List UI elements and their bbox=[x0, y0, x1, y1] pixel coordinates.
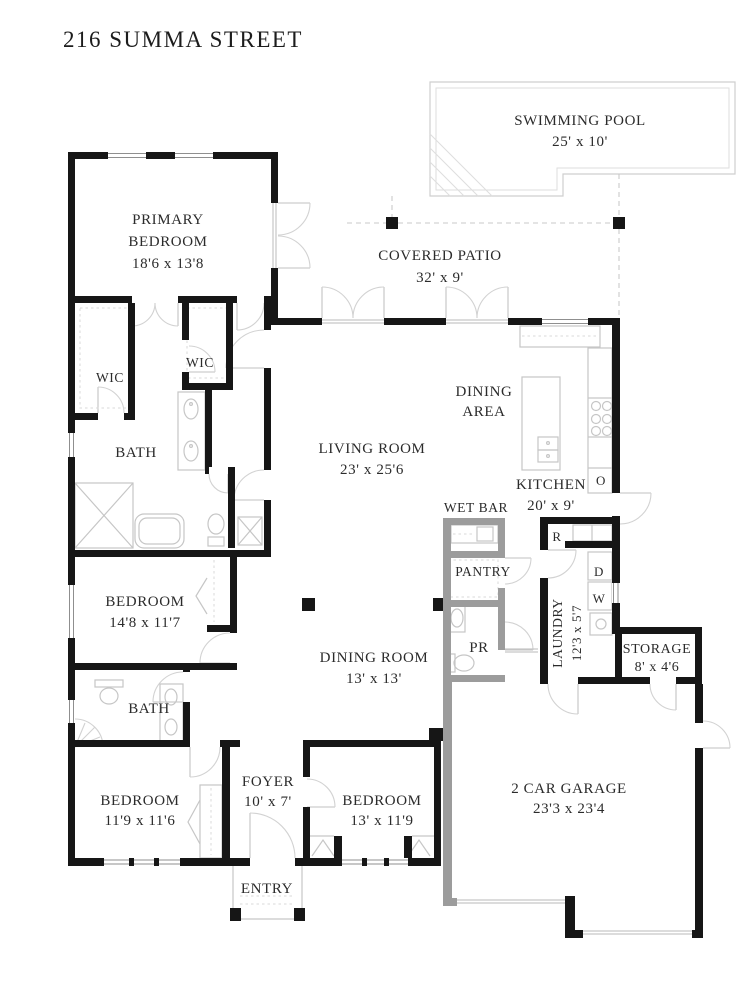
linen-closet-icon bbox=[238, 517, 262, 545]
svg-text:AREA: AREA bbox=[462, 404, 505, 420]
svg-text:13' x 13': 13' x 13' bbox=[346, 671, 402, 687]
oven-label: O bbox=[596, 473, 606, 488]
svg-text:23' x 25'6: 23' x 25'6 bbox=[340, 462, 404, 478]
room-foyer: FOYER 10' x 7' bbox=[242, 774, 294, 810]
column bbox=[429, 728, 445, 741]
pool-label: SWIMMING POOL bbox=[514, 113, 646, 129]
svg-text:12'3 x 5'7: 12'3 x 5'7 bbox=[569, 605, 584, 661]
svg-text:11'9 x 11'6: 11'9 x 11'6 bbox=[105, 813, 176, 829]
bathtub-icon bbox=[135, 514, 184, 548]
svg-text:PRIMARY: PRIMARY bbox=[132, 212, 204, 228]
svg-text:LIVING ROOM: LIVING ROOM bbox=[318, 441, 425, 457]
room-primary-bedroom: PRIMARY BEDROOM 18'6 x 13'8 bbox=[128, 212, 207, 272]
room-dining-room: DINING ROOM 13' x 13' bbox=[320, 650, 429, 687]
closet-bifold-icon bbox=[188, 785, 222, 858]
closet-bifold-icon bbox=[196, 560, 214, 622]
svg-text:8' x 4'6: 8' x 4'6 bbox=[635, 660, 680, 675]
room-bedroom3: BEDROOM 11'9 x 11'6 bbox=[100, 793, 179, 829]
column bbox=[302, 598, 315, 611]
svg-text:10' x 7': 10' x 7' bbox=[244, 794, 292, 810]
patio-label: COVERED PATIO bbox=[378, 248, 502, 264]
room-laundry: LAUNDRY 12'3 x 5'7 bbox=[550, 598, 584, 667]
patio-post bbox=[386, 217, 398, 229]
svg-text:2 CAR GARAGE: 2 CAR GARAGE bbox=[511, 781, 627, 797]
patio-dims: 32' x 9' bbox=[416, 270, 464, 286]
dryer-label: D bbox=[594, 564, 604, 579]
refrigerator-label: R bbox=[552, 529, 561, 544]
svg-text:BEDROOM: BEDROOM bbox=[128, 234, 207, 250]
room-pantry: PANTRY bbox=[455, 564, 511, 579]
svg-text:KITCHEN: KITCHEN bbox=[516, 477, 586, 493]
room-storage: STORAGE 8' x 4'6 bbox=[623, 642, 692, 675]
kitchen-counter bbox=[520, 326, 600, 347]
room-pr: PR bbox=[469, 640, 489, 656]
toilet-icon bbox=[95, 680, 123, 704]
svg-text:STORAGE: STORAGE bbox=[623, 642, 692, 657]
swimming-pool: SWIMMING POOL 25' x 10' bbox=[430, 82, 735, 196]
svg-text:13' x 11'9: 13' x 11'9 bbox=[350, 813, 413, 829]
refrigerator-icon bbox=[573, 525, 612, 541]
page-title: 216 SUMMA STREET bbox=[63, 27, 303, 52]
floor-plan-page: SWIMMING POOL 25' x 10' COVERED PATIO 32… bbox=[0, 0, 747, 1000]
room-dining-area: DINING AREA bbox=[456, 384, 513, 420]
shower-icon bbox=[75, 483, 133, 548]
toilet-icon bbox=[208, 514, 224, 546]
washer-label: W bbox=[593, 591, 606, 606]
room-garage: 2 CAR GARAGE 23'3 x 23'4 bbox=[511, 781, 627, 817]
room-primary-bath: BATH bbox=[115, 445, 157, 461]
floor-plan-drawing: SWIMMING POOL 25' x 10' COVERED PATIO 32… bbox=[0, 0, 747, 1000]
room-wet-bar: WET BAR bbox=[444, 500, 508, 515]
patio-post bbox=[613, 217, 625, 229]
svg-text:DINING: DINING bbox=[456, 384, 513, 400]
svg-text:23'3 x 23'4: 23'3 x 23'4 bbox=[533, 801, 605, 817]
wet-bar-sink-icon bbox=[451, 525, 498, 543]
entry-post bbox=[294, 908, 305, 921]
cooktop-icon bbox=[588, 348, 612, 493]
svg-text:DINING ROOM: DINING ROOM bbox=[320, 650, 429, 666]
room-wic1: WIC bbox=[96, 370, 124, 385]
room-entry: ENTRY bbox=[241, 881, 293, 897]
svg-text:BEDROOM: BEDROOM bbox=[100, 793, 179, 809]
room-kitchen: KITCHEN 20' x 9' bbox=[516, 477, 586, 514]
svg-text:LAUNDRY: LAUNDRY bbox=[550, 598, 565, 667]
svg-text:BEDROOM: BEDROOM bbox=[105, 594, 184, 610]
svg-text:18'6 x 13'8: 18'6 x 13'8 bbox=[132, 256, 204, 272]
svg-text:20' x 9': 20' x 9' bbox=[527, 498, 575, 514]
room-wic2: WIC bbox=[186, 355, 214, 370]
sink-icon bbox=[449, 606, 465, 632]
double-vanity-icon bbox=[178, 392, 205, 470]
utility-sink-icon bbox=[590, 613, 612, 635]
svg-text:BEDROOM: BEDROOM bbox=[342, 793, 421, 809]
entry-post bbox=[230, 908, 241, 921]
svg-text:14'8 x 11'7: 14'8 x 11'7 bbox=[109, 615, 180, 631]
toilet-icon bbox=[448, 654, 474, 672]
room-bedroom2: BEDROOM 14'8 x 11'7 bbox=[105, 594, 184, 631]
pool-dims: 25' x 10' bbox=[552, 134, 608, 150]
wic1-shelving bbox=[80, 308, 130, 408]
room-bedroom4: BEDROOM 13' x 11'9 bbox=[342, 793, 421, 829]
kitchen-island-sink-icon bbox=[522, 377, 560, 470]
svg-text:FOYER: FOYER bbox=[242, 774, 294, 790]
closet-bifold-icon bbox=[310, 836, 434, 856]
room-living: LIVING ROOM 23' x 25'6 bbox=[318, 441, 425, 478]
room-bath2: BATH bbox=[128, 701, 170, 717]
